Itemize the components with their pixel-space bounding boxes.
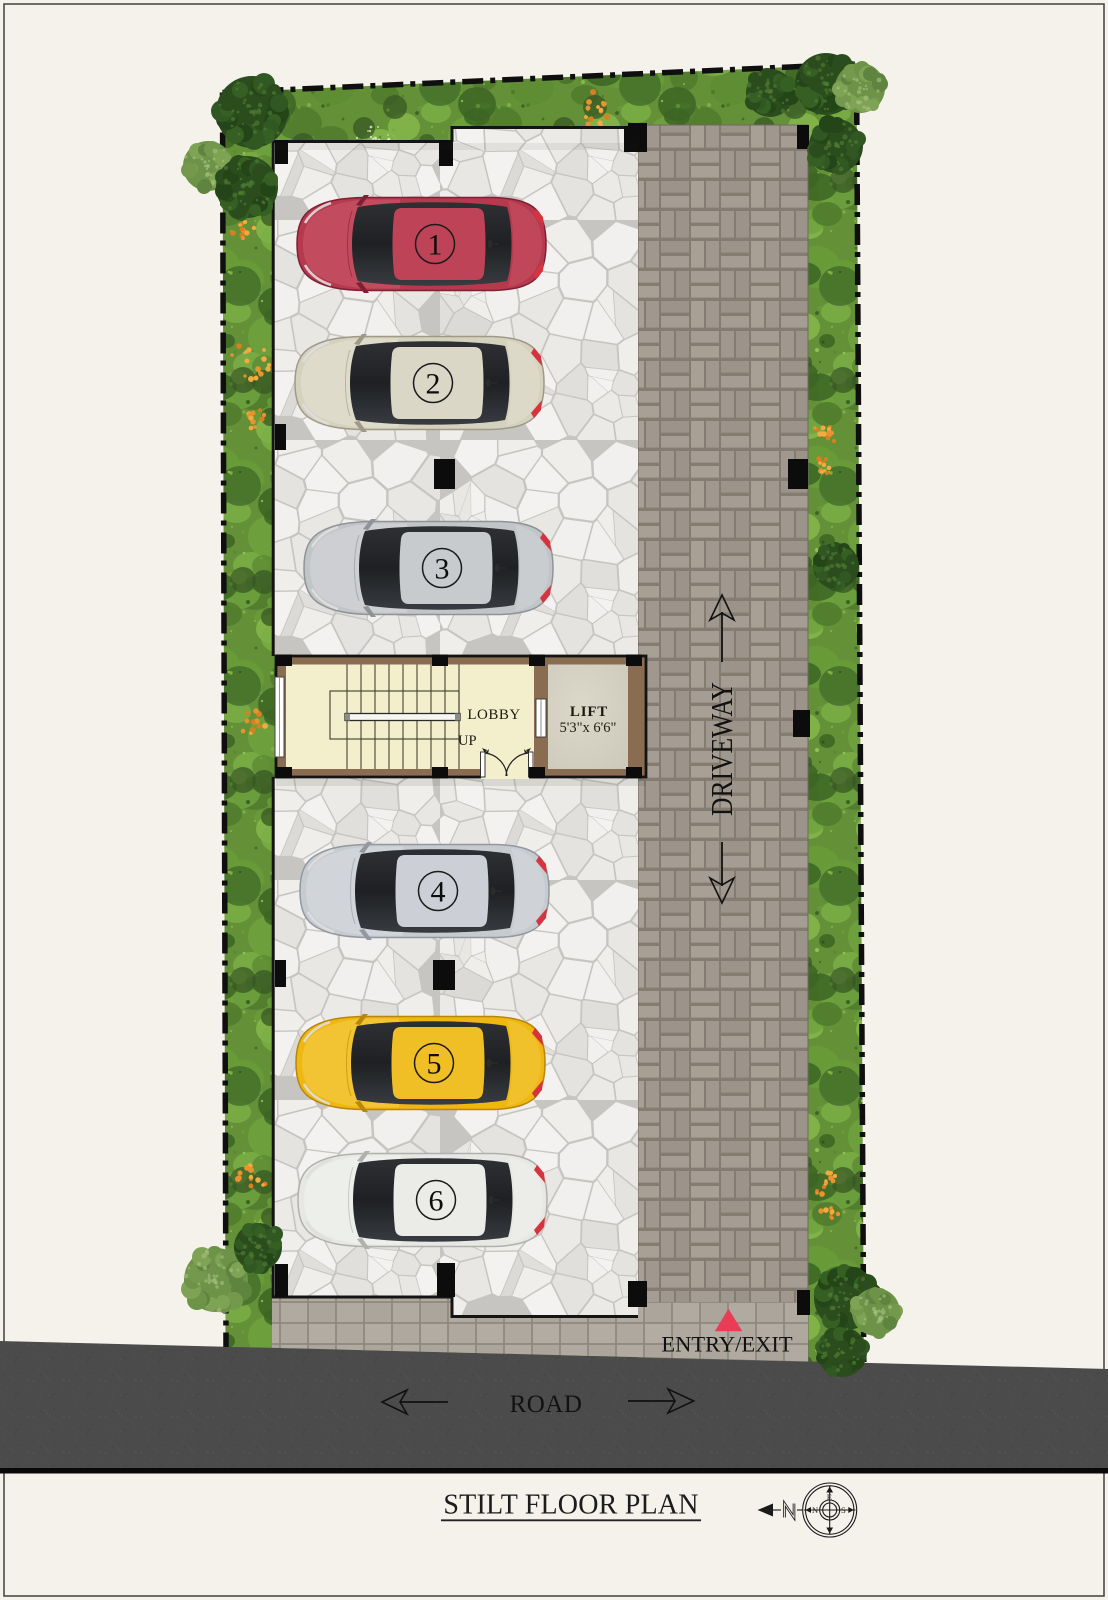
svg-text:E: E — [827, 1492, 832, 1502]
svg-text:5'3"x 6'6": 5'3"x 6'6" — [560, 720, 617, 736]
svg-text:4: 4 — [431, 876, 446, 909]
svg-text:2: 2 — [426, 368, 441, 401]
svg-text:6: 6 — [429, 1185, 444, 1218]
svg-text:S: S — [841, 1505, 846, 1515]
svg-text:ENTRY/EXIT: ENTRY/EXIT — [661, 1331, 792, 1356]
svg-text:ROAD: ROAD — [510, 1391, 583, 1418]
svg-text:STILT FLOOR PLAN: STILT FLOOR PLAN — [443, 1490, 698, 1521]
svg-text:DRIVEWAY: DRIVEWAY — [706, 682, 740, 816]
svg-text:5: 5 — [427, 1048, 442, 1081]
svg-text:N: N — [812, 1505, 818, 1515]
svg-text:LIFT: LIFT — [570, 704, 608, 720]
svg-text:3: 3 — [435, 553, 450, 586]
svg-text:1: 1 — [428, 229, 443, 262]
svg-text:LOBBY: LOBBY — [467, 707, 520, 723]
svg-text:UP: UP — [458, 733, 477, 749]
